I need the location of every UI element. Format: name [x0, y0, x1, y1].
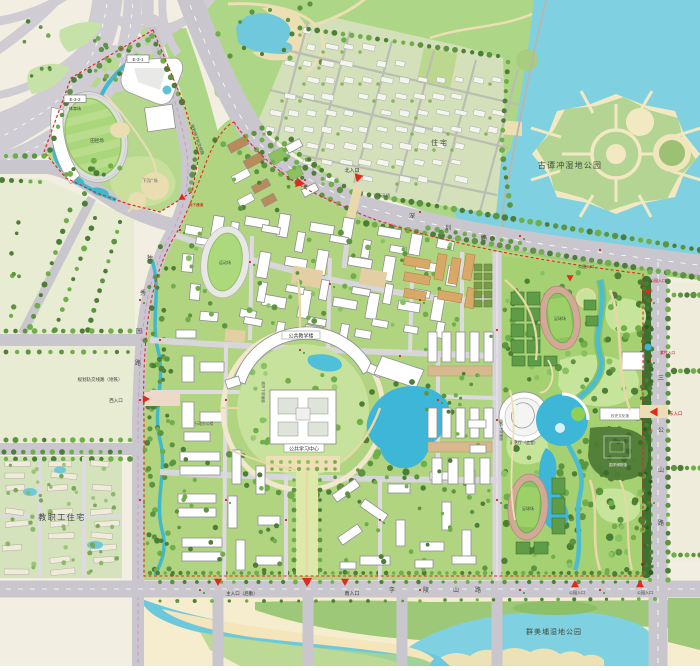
- svg-text:路: 路: [658, 519, 664, 527]
- svg-text:E-3-1: E-3-1: [132, 57, 144, 62]
- svg-text:陵: 陵: [423, 586, 429, 594]
- svg-text:足球场: 足球场: [522, 505, 534, 511]
- svg-text:路: 路: [475, 586, 481, 594]
- svg-text:圳: 圳: [445, 224, 451, 232]
- svg-text:下沉广场: 下沉广场: [142, 178, 157, 183]
- svg-text:园: 园: [136, 328, 142, 335]
- svg-text:教职工住宅: 教职工住宅: [38, 512, 86, 522]
- svg-text:南入口: 南入口: [344, 590, 359, 597]
- svg-text:秀: 秀: [140, 289, 146, 297]
- svg-text:公: 公: [658, 427, 664, 434]
- svg-text:校史文化馆: 校史文化馆: [611, 413, 629, 418]
- svg-text:深: 深: [409, 212, 415, 220]
- svg-text:运动场: 运动场: [219, 259, 231, 265]
- svg-text:E-3-2: E-3-2: [69, 97, 81, 102]
- svg-text:主入口（后勤）: 主入口（后勤）: [226, 590, 258, 597]
- svg-text:田径场: 田径场: [90, 137, 104, 144]
- svg-text:紫竹入口: 紫竹入口: [660, 350, 675, 355]
- svg-text:独: 独: [147, 254, 153, 262]
- svg-text:路: 路: [481, 234, 487, 242]
- svg-text:过街天桥: 过街天桥: [374, 192, 390, 198]
- svg-text:公园入口: 公园入口: [578, 263, 594, 269]
- svg-text:公园入口: 公园入口: [569, 589, 585, 595]
- svg-text:公园入口: 公园入口: [637, 589, 653, 595]
- svg-text:规划轨交线路（地铁）: 规划轨交线路（地铁）: [78, 376, 123, 383]
- svg-text:东入口: 东入口: [669, 410, 683, 417]
- svg-text:三: 三: [658, 375, 664, 382]
- svg-text:足球场: 足球场: [554, 315, 566, 321]
- svg-text:路: 路: [135, 359, 141, 367]
- svg-text:群美埔湿地公园: 群美埔湿地公园: [526, 627, 582, 636]
- svg-text:行政办公楼: 行政办公楼: [195, 421, 214, 426]
- svg-text:公共教学楼: 公共教学楼: [288, 333, 313, 340]
- svg-text:山: 山: [453, 586, 459, 594]
- svg-text:住宅: 住宅: [431, 138, 449, 147]
- svg-text:北入口: 北入口: [344, 167, 359, 174]
- svg-text:演艺厅（会堂）: 演艺厅（会堂）: [510, 439, 538, 445]
- svg-text:地下通道: 地下通道: [189, 202, 204, 207]
- svg-text:山: 山: [658, 466, 664, 474]
- svg-text:公园入口: 公园入口: [650, 277, 666, 283]
- svg-text:公共学习中心: 公共学习中心: [289, 446, 319, 453]
- svg-text:城市下穿通道: 城市下穿通道: [261, 381, 266, 403]
- svg-text:国学博物馆: 国学博物馆: [609, 462, 627, 467]
- svg-text:体育场: 体育场: [69, 105, 81, 111]
- svg-text:古谭冲湿地公园: 古谭冲湿地公园: [538, 160, 602, 170]
- svg-text:李: 李: [389, 586, 395, 594]
